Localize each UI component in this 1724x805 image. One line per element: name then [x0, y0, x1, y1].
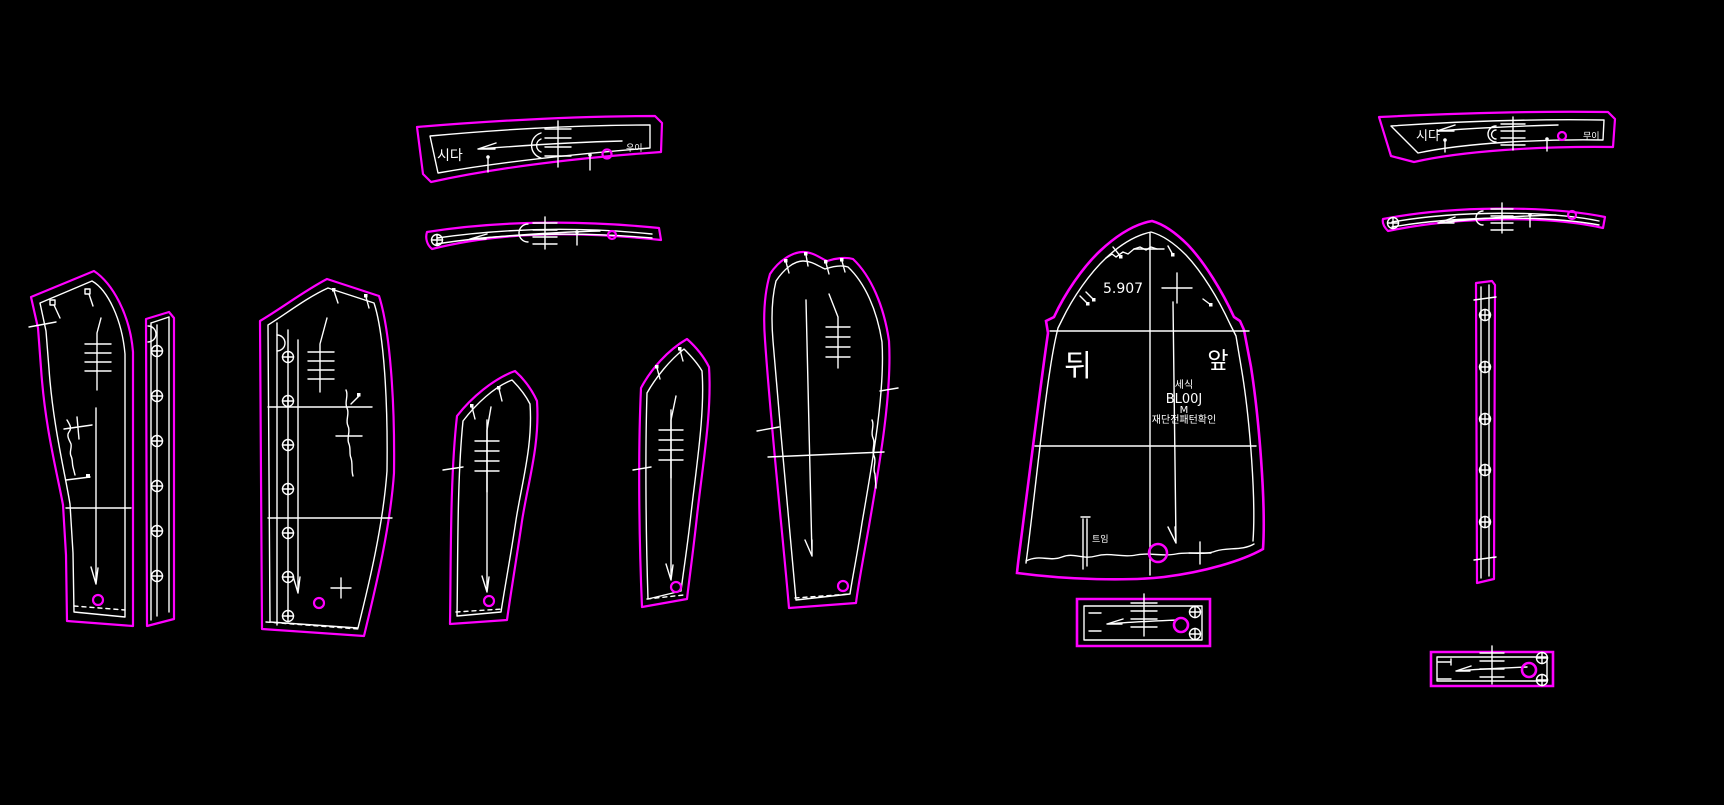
notch-ticks [1438, 659, 1451, 679]
pin-dot [470, 404, 474, 408]
piece-outline [260, 279, 394, 636]
pin-dot [1528, 213, 1532, 217]
buttonhole-mark [283, 572, 294, 583]
pattern-piece-collar-band-upper-right[interactable]: 시다 무이 [1379, 112, 1615, 162]
buttonhole-mark [1190, 629, 1201, 640]
pin-dot [588, 153, 592, 157]
pin-dot [497, 386, 501, 390]
piece-outline [1476, 281, 1495, 583]
buttonhole-mark [152, 571, 163, 582]
piece-sewline [646, 349, 703, 599]
pin-dot [1119, 255, 1123, 259]
hem-wavy-line [1026, 544, 1254, 561]
buttonhole-mark [152, 391, 163, 402]
notch-pins [472, 389, 502, 419]
notch-arc [1488, 126, 1496, 142]
pattern-piece-side-panel-small[interactable] [443, 371, 537, 624]
pin-dot [784, 259, 788, 263]
pin-dot [332, 288, 336, 292]
info-line-1: 세식 [1175, 379, 1193, 391]
grain-arrow [482, 420, 489, 592]
info-line-4: 재단전패턴확인 [1152, 414, 1216, 426]
pin-dot [364, 294, 368, 298]
drill-hole [1558, 132, 1566, 140]
grain-arrow [293, 340, 300, 593]
piece-outline [764, 252, 889, 608]
grain-hash-marks [308, 318, 334, 392]
pattern-piece-sleeve-panel[interactable] [633, 339, 710, 607]
pattern-piece-collar-band-lower-left[interactable] [426, 217, 661, 249]
piece-outline [450, 371, 537, 624]
notch-pins [657, 350, 683, 379]
notch-arc [277, 335, 285, 351]
hem-dashed-line [74, 606, 125, 610]
ease-wavy-line [872, 420, 876, 488]
buttonhole-mark [1537, 675, 1548, 686]
pin-dot [1171, 253, 1175, 257]
notch-arc [519, 224, 528, 242]
piece-outline [146, 312, 174, 626]
buttonhole-mark [152, 346, 163, 357]
front-label: 앞 [1207, 348, 1228, 374]
piece-label-right: 우이 [626, 143, 643, 154]
drill-hole [1174, 618, 1188, 632]
piece-sewline [430, 125, 650, 173]
grain-hash-marks [85, 318, 111, 390]
pin-dot [86, 474, 90, 478]
piece-sewline [151, 317, 169, 620]
drill-hole [484, 596, 494, 606]
drill-hole [1149, 544, 1167, 562]
cross-mark [1162, 273, 1192, 303]
buttonhole-mark [283, 484, 294, 495]
buttonhole-mark [432, 235, 443, 246]
pattern-piece-front-bodice-left[interactable] [29, 271, 133, 626]
drill-hole [314, 598, 324, 608]
grain-arrow [666, 410, 673, 580]
notch-pins [1080, 246, 1211, 305]
drill-hole [1522, 663, 1536, 677]
grain-arrow [91, 408, 98, 584]
pattern-piece-back-panel[interactable] [757, 252, 898, 608]
cross-mark-hem [1189, 542, 1211, 564]
drill-hole [671, 582, 681, 592]
notch-ticks [1089, 613, 1101, 631]
pin-dot [1086, 302, 1090, 306]
piece-sewline [457, 380, 531, 616]
edge-tick [633, 467, 651, 470]
buttonhole-mark [1537, 653, 1548, 664]
buttonhole-mark [283, 611, 294, 622]
pin-dot [1209, 303, 1213, 307]
grain-hash-marks [1501, 117, 1525, 150]
measurement-label: 5.907 [1103, 281, 1143, 297]
drill-hole [838, 581, 848, 591]
notch-arc [148, 326, 156, 342]
grain-arrow [478, 141, 622, 149]
buttonhole-mark [1190, 607, 1201, 618]
drill-hole [93, 595, 103, 605]
pattern-piece-waistband-right[interactable] [1431, 646, 1553, 686]
buttonhole-mark [152, 436, 163, 447]
pattern-cad-canvas[interactable]: 시다 우이 [0, 0, 1724, 805]
grain-arrow [1107, 619, 1177, 624]
buttonhole-mark [152, 526, 163, 537]
hip-line [768, 452, 884, 457]
pin-dot [824, 260, 828, 264]
vent-mark [1081, 517, 1090, 569]
hem-dashed-line [456, 609, 503, 612]
piece-label-right: 무이 [1583, 131, 1600, 142]
notch-square [85, 289, 90, 294]
pin-dot [1092, 298, 1096, 302]
pin-dot [486, 155, 490, 159]
pattern-drawing: 시다 우이 [0, 0, 1724, 805]
pattern-piece-front-facing-strip[interactable] [146, 312, 174, 626]
buttonhole-mark [283, 396, 294, 407]
back-label: 뒤 [1064, 349, 1092, 384]
grain-hash-marks [826, 294, 850, 368]
piece-sewline [1481, 285, 1489, 578]
pin-line [351, 396, 359, 404]
pin-dot [575, 230, 579, 234]
pattern-piece-waistband-center[interactable] [1077, 594, 1210, 646]
pattern-piece-collar-band-lower-right[interactable] [1383, 203, 1605, 233]
pattern-piece-collar-band-upper-left[interactable]: 시다 우이 [417, 116, 662, 182]
pin-dot [357, 393, 361, 397]
piece-outline [1017, 221, 1264, 579]
pin-dot [804, 252, 808, 256]
notch-square [50, 300, 55, 305]
edge-tick [29, 322, 56, 327]
cross-mark [331, 578, 351, 598]
piece-label: 시다 [437, 148, 463, 164]
notch-pins [54, 294, 93, 318]
buttonhole-mark [283, 352, 294, 363]
pin-dot [678, 347, 682, 351]
vent-label: 트임 [1092, 533, 1109, 545]
grain-arrow [805, 300, 812, 556]
grain-arrow [1437, 125, 1558, 131]
buttonhole-mark [283, 528, 294, 539]
buttonhole-mark [1388, 218, 1399, 229]
pin-dot [1545, 137, 1549, 141]
buttonhole-mark [283, 440, 294, 451]
pin-dot [1443, 138, 1447, 142]
pin-dot [840, 258, 844, 262]
pattern-piece-body-main[interactable]: 5.907 뒤 앞 세식 BL00J M 재단전패턴확인 트임 [1017, 221, 1264, 579]
piece-outline [639, 339, 709, 607]
pattern-piece-front-bodice-placket[interactable] [260, 279, 394, 636]
pattern-piece-placket-strip-right[interactable] [1474, 281, 1496, 583]
buttonhole-mark [152, 481, 163, 492]
pin-dot [655, 365, 659, 369]
